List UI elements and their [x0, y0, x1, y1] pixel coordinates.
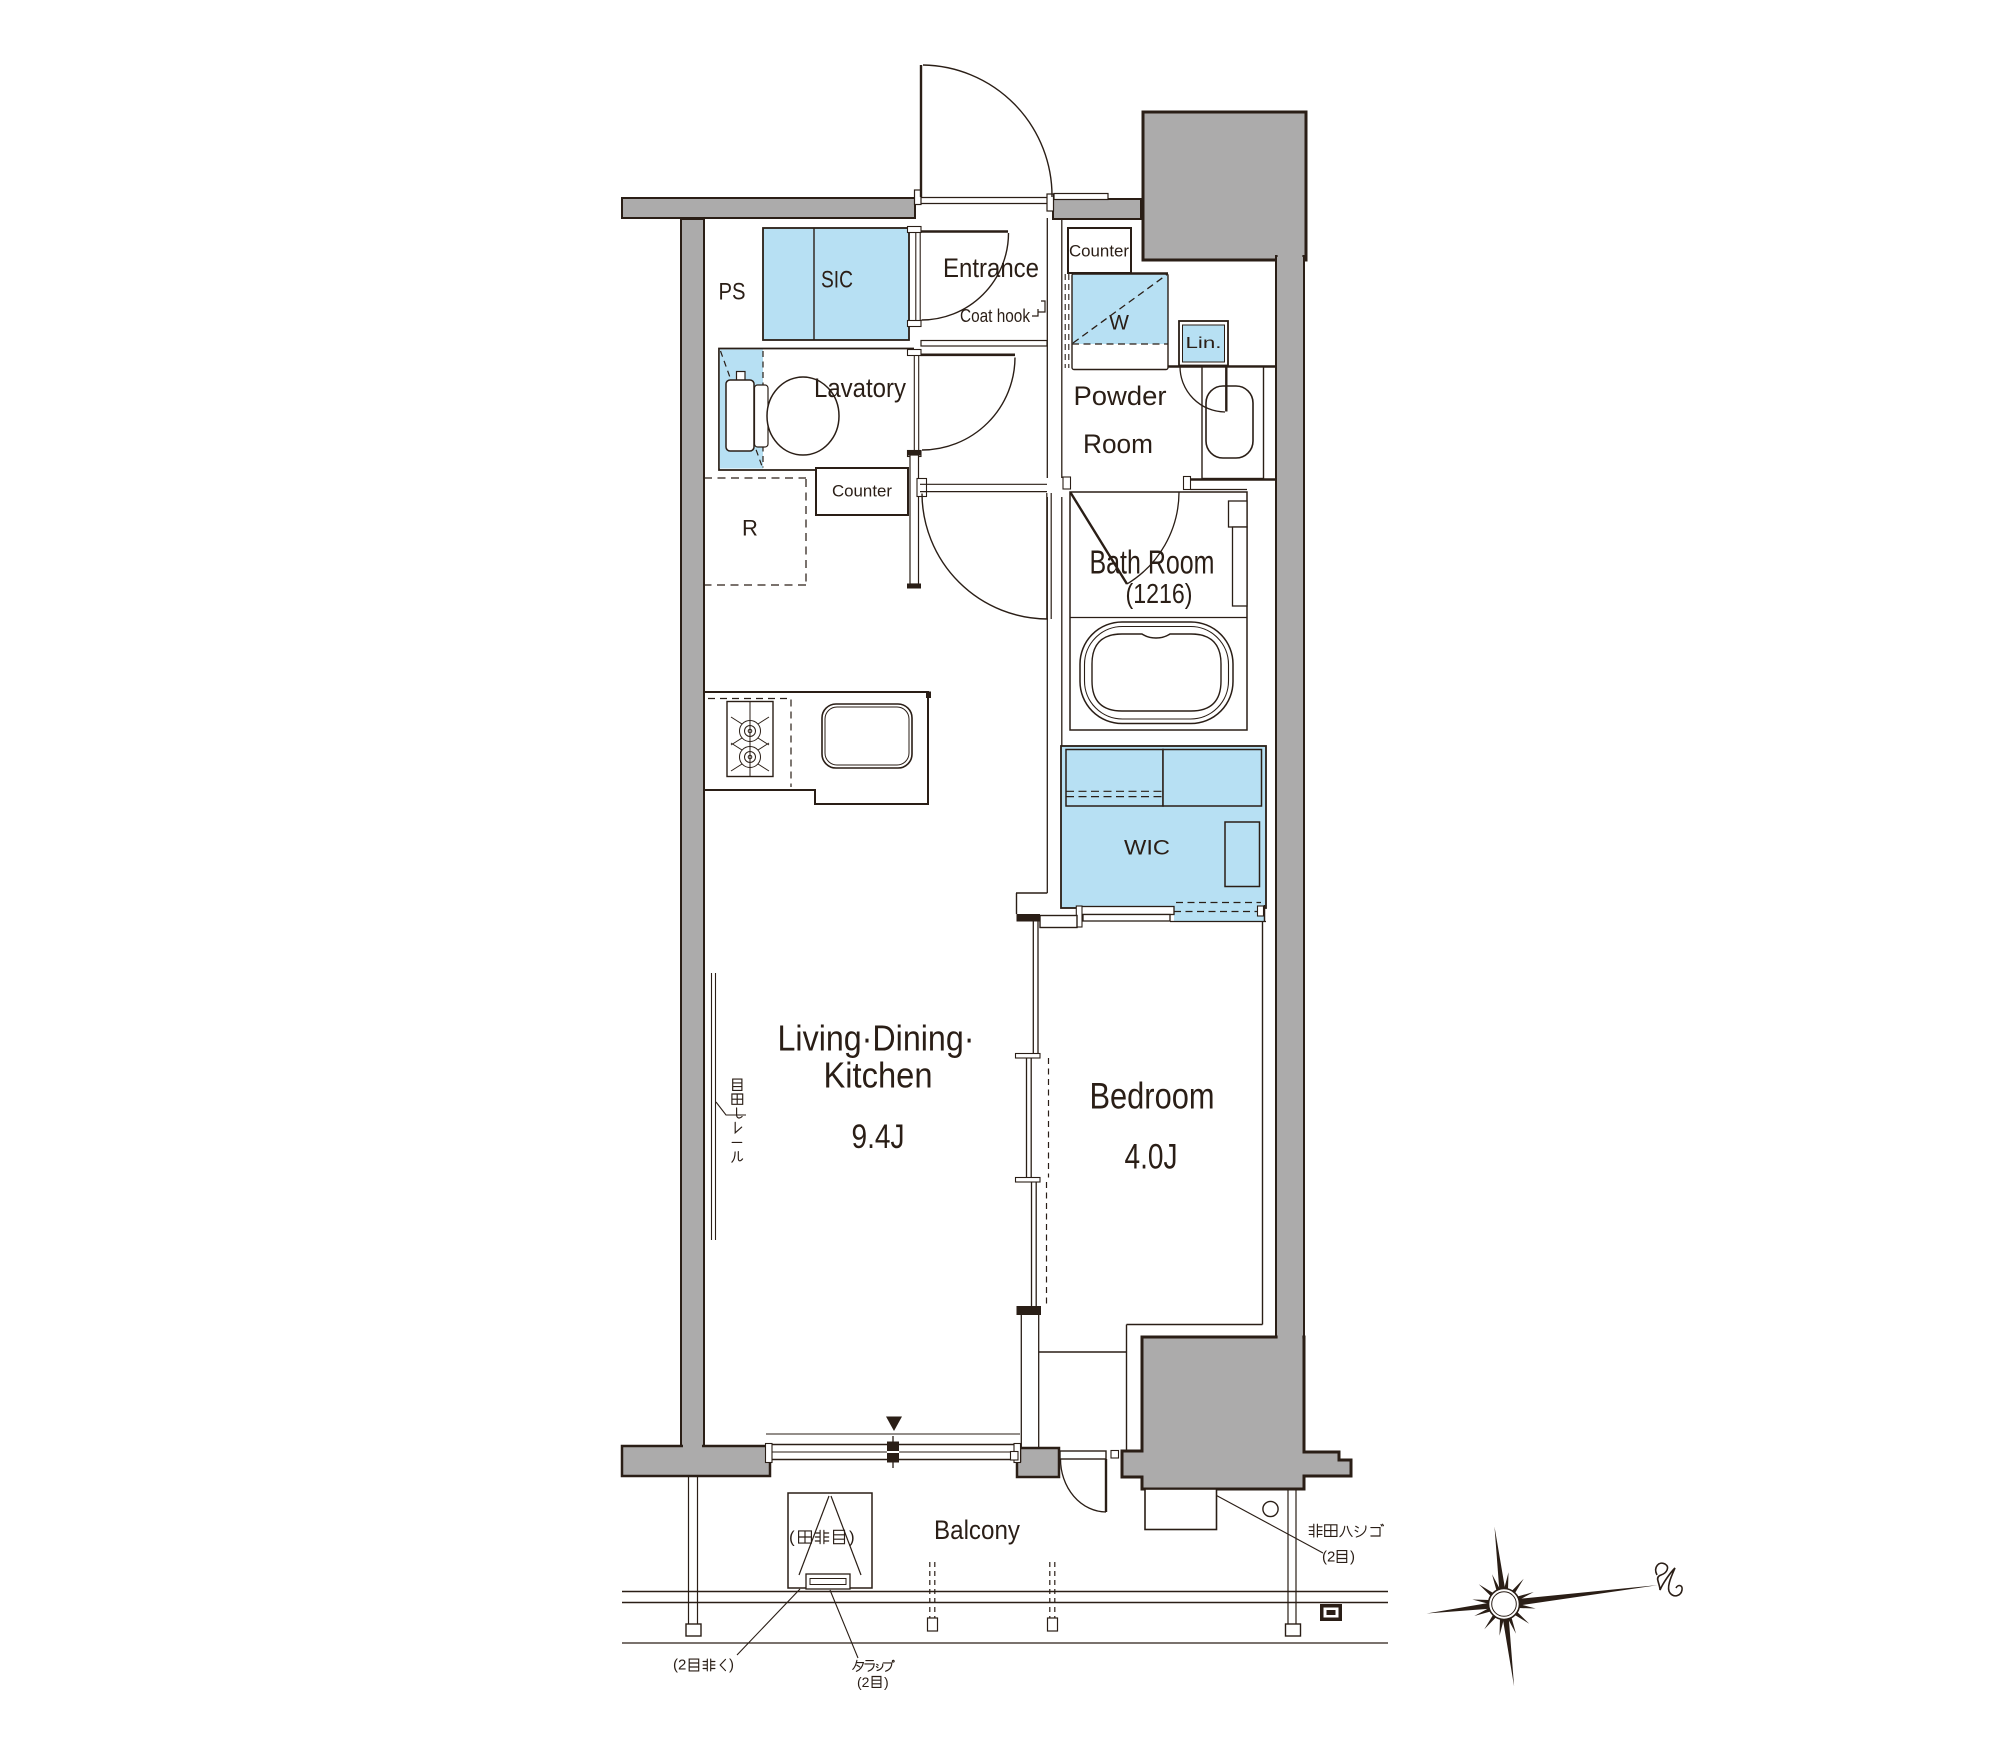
svg-text:Counter: Counter — [1069, 242, 1129, 261]
svg-text:Counter: Counter — [832, 482, 892, 501]
svg-text:): ) — [729, 1657, 734, 1674]
svg-text:(2: (2 — [673, 1657, 686, 1674]
svg-text:): ) — [849, 1528, 855, 1547]
svg-text:Bedroom: Bedroom — [1090, 1076, 1215, 1117]
svg-text:SIC: SIC — [821, 267, 853, 294]
svg-text:): ) — [1350, 1549, 1355, 1566]
svg-text:Entrance: Entrance — [943, 253, 1039, 283]
svg-text:Kitchen: Kitchen — [824, 1055, 933, 1096]
svg-text:(2: (2 — [1322, 1549, 1335, 1566]
svg-text:PS: PS — [719, 279, 746, 306]
svg-text:(: ( — [789, 1528, 795, 1547]
svg-text:Lin.: Lin. — [1186, 335, 1222, 352]
svg-text:(1216): (1216) — [1126, 578, 1193, 609]
svg-text:Powder: Powder — [1074, 381, 1167, 411]
svg-text:WIC: WIC — [1124, 837, 1170, 860]
svg-text:(2: (2 — [857, 1674, 870, 1690]
svg-text:R: R — [742, 516, 758, 541]
svg-text:Room: Room — [1083, 429, 1153, 459]
svg-text:9.4J: 9.4J — [852, 1118, 905, 1156]
svg-text:4.0J: 4.0J — [1125, 1138, 1178, 1177]
svg-text:): ) — [884, 1674, 889, 1690]
svg-text:Lavatory: Lavatory — [814, 373, 906, 403]
svg-text:Balcony: Balcony — [934, 1515, 1020, 1545]
svg-text:W: W — [1109, 312, 1129, 335]
svg-text:Bath Room: Bath Room — [1090, 544, 1215, 581]
svg-text:Coat hook: Coat hook — [960, 306, 1031, 326]
svg-text:Living·Dining·: Living·Dining· — [778, 1018, 975, 1059]
